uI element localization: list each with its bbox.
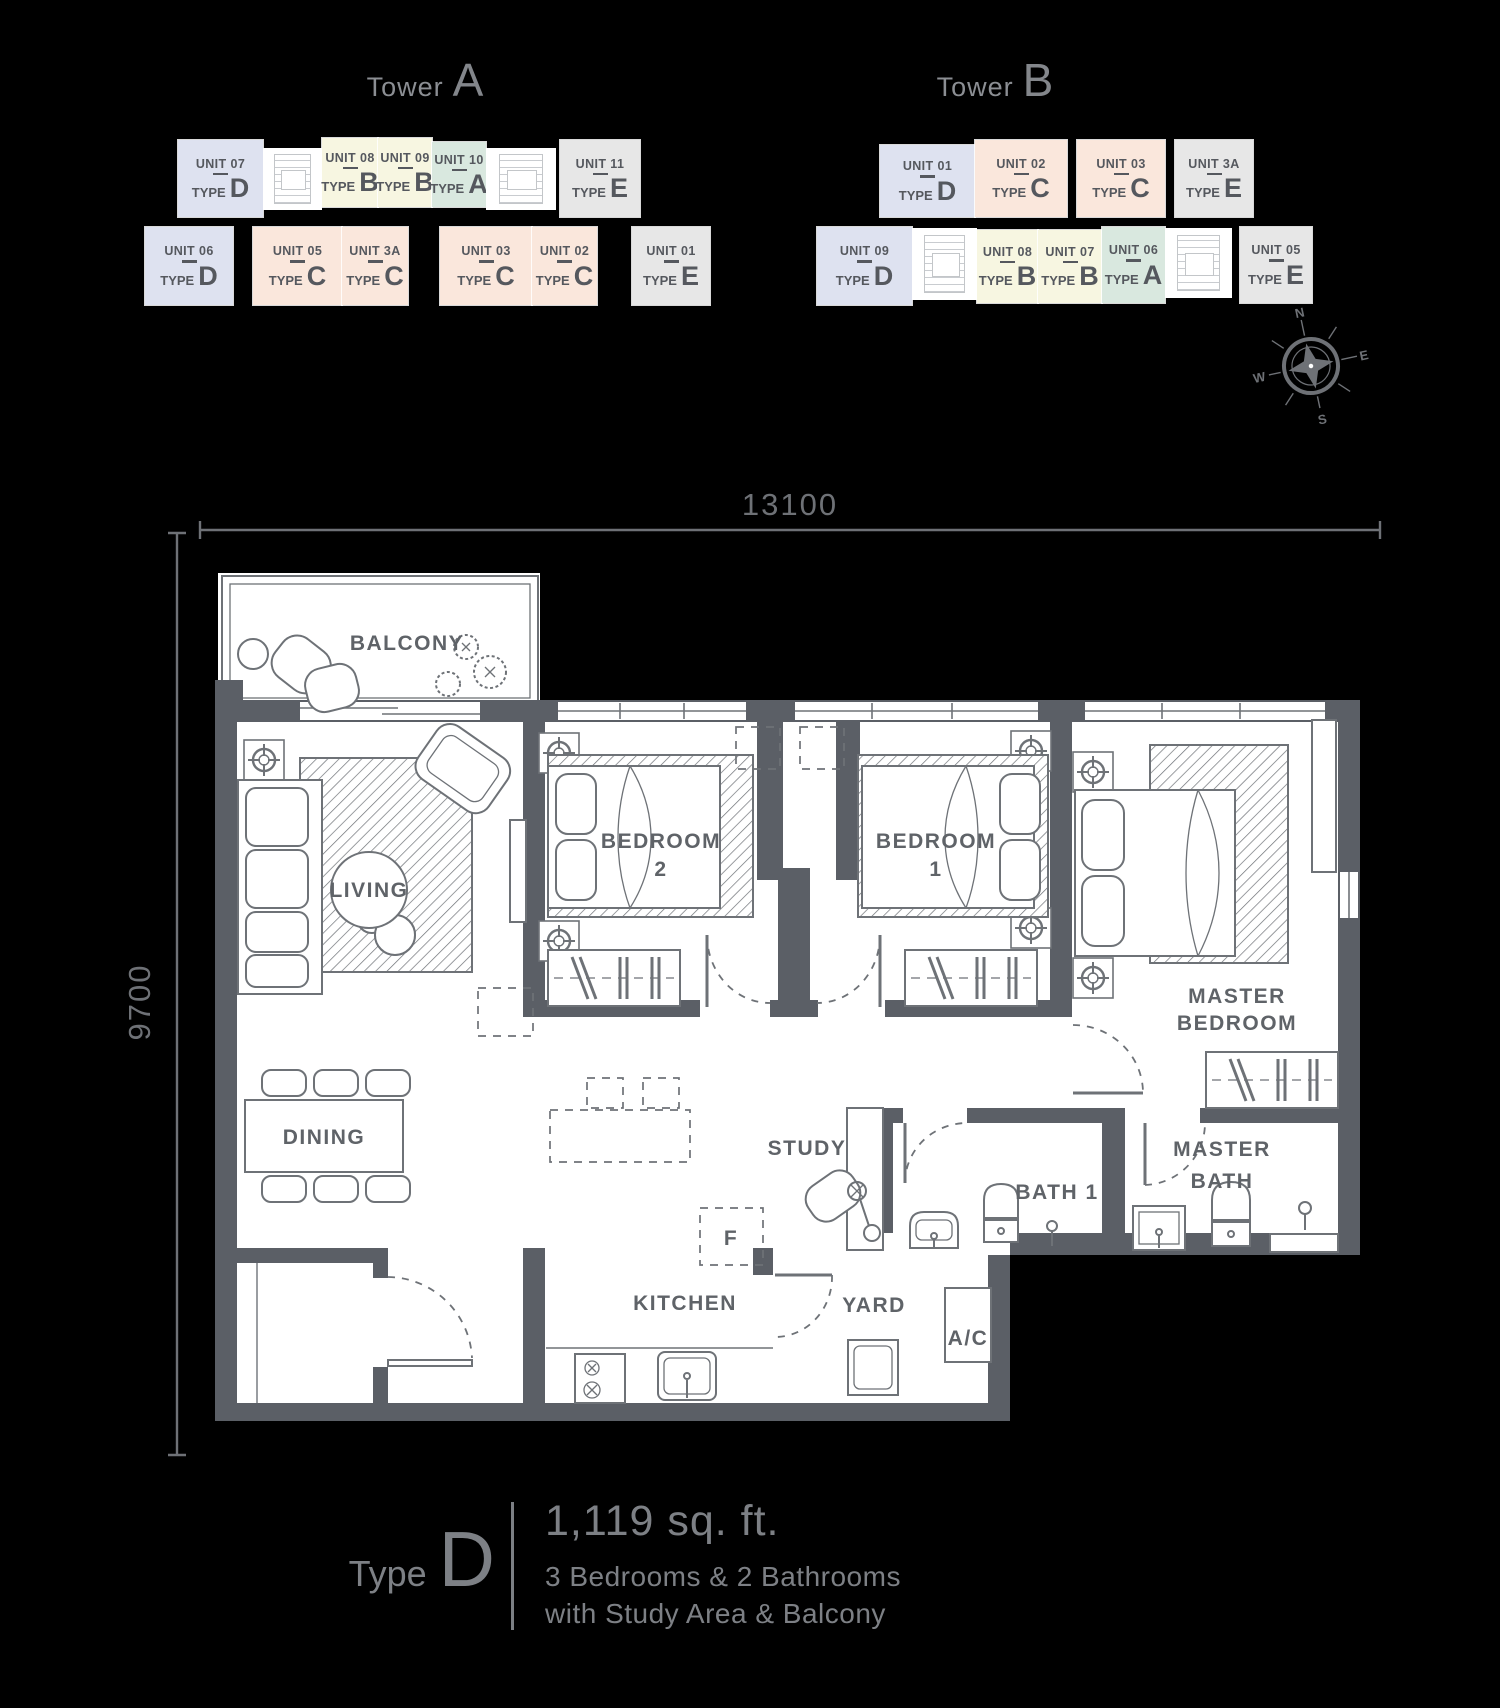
unit-block: UNIT 08 TYPEB	[977, 230, 1038, 303]
unit-block: UNIT 06 TYPED	[145, 227, 233, 305]
unit-type-word: TYPE	[899, 188, 933, 203]
unit-divider	[398, 167, 413, 170]
room-label-masterbath-1: MASTER	[1173, 1138, 1271, 1161]
unit-number: UNIT 01	[646, 244, 695, 258]
unit-type-letter: C	[384, 265, 404, 288]
unit-type-word: TYPE	[192, 185, 226, 200]
tower-a-word: Tower	[367, 72, 444, 103]
bedroom1-wardrobe	[905, 950, 1037, 1006]
unit-type-word: TYPE	[457, 273, 491, 288]
unit-type-word: TYPE	[321, 179, 355, 194]
unit-type-letter: C	[574, 265, 594, 288]
unit-block: UNIT 06 TYPEA	[1102, 227, 1165, 303]
unit-number: UNIT 07	[1045, 245, 1094, 259]
unit-type-word: TYPE	[430, 181, 464, 196]
unit-number: UNIT 01	[903, 159, 952, 173]
unit-type-word: TYPE	[1186, 185, 1220, 200]
room-label-dining: DINING	[283, 1126, 366, 1149]
caption-type: Type D	[290, 1524, 495, 1596]
unit-divider	[1126, 259, 1141, 262]
room-label-fridge: F	[724, 1227, 738, 1250]
caption-line2: with Study Area & Balcony	[545, 1595, 901, 1632]
tower-b-letter: B	[1023, 62, 1054, 99]
room-label-balcony: BALCONY	[350, 632, 464, 655]
unit-type-word: TYPE	[643, 273, 677, 288]
unit-divider	[557, 260, 572, 263]
unit-type-word: TYPE	[1248, 272, 1282, 287]
unit-type-letter: C	[495, 265, 515, 288]
unit-type-letter: D	[230, 177, 250, 200]
core-block	[486, 148, 556, 210]
unit-number: UNIT 09	[380, 151, 429, 165]
unit-divider	[479, 260, 494, 263]
caption-details: 1,119 sq. ft. 3 Bedrooms & 2 Bathrooms w…	[545, 1497, 901, 1632]
room-label-bedroom1: BEDROOM	[876, 830, 996, 853]
unit-block: UNIT 01 TYPED	[880, 145, 975, 217]
room-label-yard: YARD	[842, 1294, 906, 1317]
room-label-masterbath-2: BATH	[1191, 1170, 1254, 1193]
compass-e: E	[1358, 347, 1370, 364]
unit-divider	[1000, 261, 1015, 264]
compass-icon: N E W S	[1250, 305, 1372, 427]
unit-divider	[1269, 259, 1284, 262]
unit-divider	[664, 260, 679, 263]
unit-number: UNIT 02	[996, 157, 1045, 171]
unit-type-letter: C	[307, 265, 327, 288]
unit-block: UNIT 09 TYPEB	[378, 138, 432, 207]
unit-number: UNIT 07	[196, 157, 245, 171]
unit-type-letter: D	[198, 265, 218, 288]
unit-number: UNIT 03	[1096, 157, 1145, 171]
master-side-table	[1312, 720, 1336, 872]
unit-type-word: TYPE	[979, 273, 1013, 288]
unit-number: UNIT 05	[1251, 243, 1300, 257]
compass-n: N	[1294, 305, 1306, 321]
unit-block: UNIT 01 TYPEE	[632, 227, 710, 305]
unit-number: UNIT 06	[1109, 243, 1158, 257]
unit-type-word: TYPE	[572, 185, 606, 200]
caption-type-letter: D	[439, 1524, 495, 1596]
unit-type-letter: D	[874, 265, 894, 288]
room-label-bedroom2-num: 2	[654, 858, 667, 881]
room-label-master-2: BEDROOM	[1177, 1012, 1297, 1035]
unit-divider	[1063, 261, 1078, 264]
unit-block: UNIT 11 TYPEE	[560, 140, 640, 217]
unit-block: UNIT 03 TYPEC	[1077, 140, 1165, 217]
master-wardrobe	[1206, 1052, 1338, 1108]
compass-w: W	[1252, 369, 1268, 386]
unit-block: UNIT 3A TYPEC	[342, 227, 408, 305]
master-bed	[1075, 790, 1235, 956]
unit-number: UNIT 09	[840, 244, 889, 258]
unit-block: UNIT 08 TYPEB	[322, 138, 378, 207]
dimension-width-label: 13100	[742, 487, 838, 522]
unit-type-letter: E	[681, 265, 699, 288]
tower-b-title: Tower B	[905, 62, 1085, 103]
unit-type-letter: E	[1286, 264, 1304, 287]
unit-type-letter: A	[468, 173, 488, 196]
unit-type-word: TYPE	[346, 273, 380, 288]
unit-block: UNIT 10 TYPEA	[432, 142, 486, 207]
room-label-bedroom1-num: 1	[929, 858, 942, 881]
dimension-height-label: 9700	[122, 964, 157, 1041]
room-label-ac: A/C	[948, 1327, 989, 1350]
unit-block: UNIT 07 TYPEB	[1038, 230, 1102, 303]
caption-type-word: Type	[349, 1553, 427, 1595]
unit-divider	[593, 173, 608, 176]
unit-type-word: TYPE	[160, 273, 194, 288]
dimension-height: 9700	[122, 533, 186, 1455]
room-label-living: LIVING	[329, 879, 408, 902]
unit-type-letter: A	[1143, 264, 1163, 287]
unit-divider	[182, 260, 197, 263]
tower-a-title: Tower A	[335, 62, 515, 103]
unit-type-word: TYPE	[1092, 185, 1126, 200]
bedroom2-wardrobe	[548, 950, 680, 1006]
room-label-study: STUDY	[768, 1137, 847, 1160]
room-label-kitchen: KITCHEN	[633, 1292, 737, 1315]
unit-divider	[1207, 173, 1222, 176]
unit-number: UNIT 08	[983, 245, 1032, 259]
unit-block: UNIT 02 TYPEC	[532, 227, 597, 305]
unit-type-word: TYPE	[836, 273, 870, 288]
room-label-bedroom2: BEDROOM	[601, 830, 721, 853]
unit-number: UNIT 3A	[349, 244, 400, 258]
unit-type-letter: E	[1224, 177, 1242, 200]
unit-number: UNIT 05	[273, 244, 322, 258]
caption-line1: 3 Bedrooms & 2 Bathrooms	[545, 1558, 901, 1595]
unit-type-letter: B	[1079, 265, 1099, 288]
unit-number: UNIT 03	[461, 244, 510, 258]
core-block	[263, 148, 322, 210]
unit-type-word: TYPE	[1041, 273, 1075, 288]
unit-divider	[857, 260, 872, 263]
tower-a-letter: A	[453, 62, 484, 99]
unit-block: UNIT 03 TYPEC	[440, 227, 532, 305]
unit-type-letter: B	[1017, 265, 1037, 288]
unit-divider	[290, 260, 305, 263]
unit-type-word: TYPE	[376, 179, 410, 194]
unit-number: UNIT 3A	[1188, 157, 1239, 171]
unit-number: UNIT 08	[325, 151, 374, 165]
unit-divider	[1114, 173, 1129, 176]
unit-number: UNIT 10	[434, 153, 483, 167]
unit-block: UNIT 09 TYPED	[817, 227, 912, 305]
unit-block: UNIT 05 TYPEC	[253, 227, 342, 305]
unit-divider	[1014, 173, 1029, 176]
unit-divider	[343, 167, 358, 170]
unit-number: UNIT 11	[576, 157, 625, 171]
unit-divider	[920, 175, 935, 178]
room-label-bath1: BATH 1	[1015, 1181, 1098, 1204]
core-block	[912, 228, 977, 300]
unit-block: UNIT 05 TYPEE	[1240, 227, 1312, 303]
unit-block: UNIT 3A TYPEE	[1175, 140, 1253, 217]
unit-type-word: TYPE	[992, 185, 1026, 200]
unit-type-word: TYPE	[1105, 272, 1139, 287]
caption-divider	[511, 1502, 514, 1630]
unit-number: UNIT 02	[540, 244, 589, 258]
unit-type-word: TYPE	[536, 273, 570, 288]
unit-divider	[452, 169, 467, 172]
unit-type-word: TYPE	[269, 273, 303, 288]
dimension-width: 13100	[200, 487, 1380, 539]
unit-type-letter: E	[610, 177, 628, 200]
unit-type-letter: C	[1030, 177, 1050, 200]
floor-plan: 13100 9700	[90, 420, 1420, 1490]
ac-box	[945, 1288, 991, 1362]
core-block	[1165, 228, 1232, 298]
unit-type-letter: D	[937, 180, 957, 203]
unit-block: UNIT 07 TYPED	[178, 140, 263, 217]
unit-divider	[213, 173, 228, 176]
caption-area: 1,119 sq. ft.	[545, 1497, 901, 1546]
unit-divider	[368, 260, 383, 263]
tower-b-word: Tower	[937, 72, 1014, 103]
unit-block: UNIT 02 TYPEC	[975, 140, 1067, 217]
room-label-master-1: MASTER	[1188, 985, 1286, 1008]
unit-type-letter: C	[1130, 177, 1150, 200]
unit-number: UNIT 06	[164, 244, 213, 258]
floor-plan-page: Tower A UNIT 07 TYPED UNIT 08 TYPEB UNIT…	[0, 0, 1500, 1708]
